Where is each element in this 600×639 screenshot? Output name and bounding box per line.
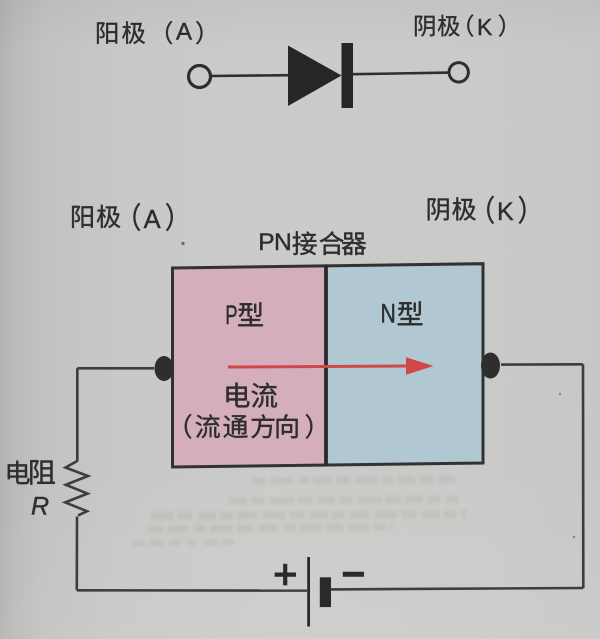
svg-text:P: P [225, 299, 237, 329]
svg-text:K: K [477, 14, 493, 40]
svg-text:R: R [31, 493, 49, 521]
svg-text:N: N [381, 299, 396, 329]
svg-text:A: A [176, 19, 192, 46]
svg-text:A: A [144, 206, 161, 234]
svg-text:K: K [497, 198, 514, 226]
svg-text:PN: PN [258, 229, 291, 256]
